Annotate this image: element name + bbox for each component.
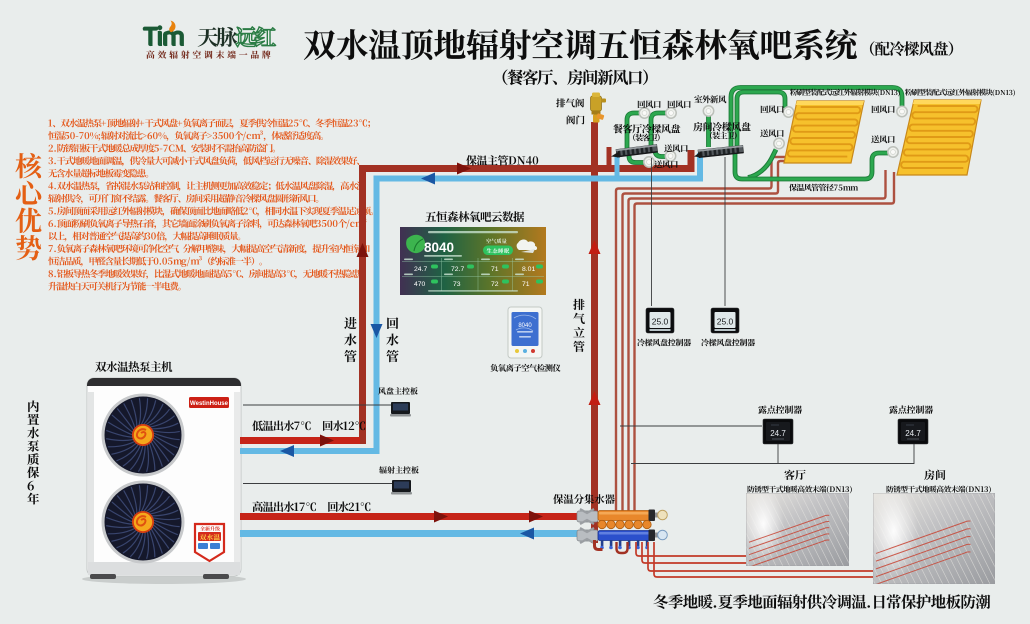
svg-text:470: 470 xyxy=(414,281,426,288)
svg-text:25.0: 25.0 xyxy=(717,317,734,327)
svg-text:24.7: 24.7 xyxy=(414,266,427,273)
svg-text:8.01: 8.01 xyxy=(522,266,535,273)
svg-text:8040: 8040 xyxy=(518,323,532,329)
svg-text:WestinHouse: WestinHouse xyxy=(190,401,229,407)
svg-text:24.7: 24.7 xyxy=(770,429,786,438)
svg-text:71: 71 xyxy=(491,266,499,273)
svg-text:71: 71 xyxy=(522,281,530,288)
svg-text:24.7: 24.7 xyxy=(905,429,921,438)
svg-text:73: 73 xyxy=(453,281,461,288)
svg-text:25.0: 25.0 xyxy=(652,317,669,327)
svg-text:72: 72 xyxy=(491,281,499,288)
svg-text:8040: 8040 xyxy=(424,240,454,255)
svg-text:72.7: 72.7 xyxy=(451,266,464,273)
